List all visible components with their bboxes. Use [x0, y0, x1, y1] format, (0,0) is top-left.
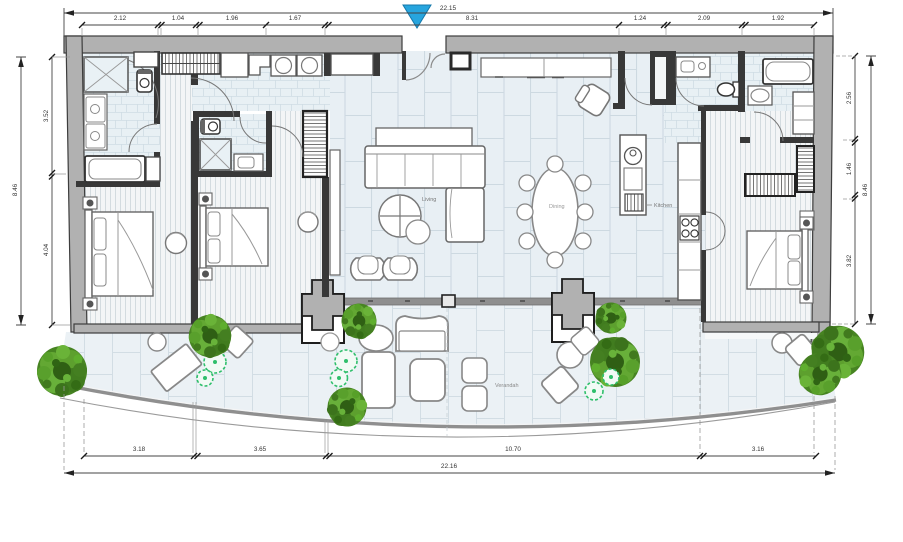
svg-text:8.46: 8.46	[12, 183, 19, 196]
svg-text:8.31: 8.31	[466, 15, 479, 22]
svg-text:2.56: 2.56	[846, 91, 853, 104]
svg-text:Kitchen: Kitchen	[654, 203, 672, 209]
svg-text:1.04: 1.04	[172, 15, 185, 22]
svg-text:3.16: 3.16	[752, 446, 765, 453]
svg-text:2.09: 2.09	[698, 15, 711, 22]
svg-text:22.16: 22.16	[441, 463, 458, 470]
svg-text:Verandah: Verandah	[495, 383, 519, 389]
svg-text:3.52: 3.52	[43, 109, 50, 122]
svg-text:3.82: 3.82	[846, 254, 853, 267]
svg-text:3.65: 3.65	[254, 446, 267, 453]
svg-text:Dining: Dining	[549, 204, 565, 210]
svg-text:8.46: 8.46	[862, 183, 869, 196]
svg-text:10.70: 10.70	[505, 446, 521, 453]
svg-text:1.46: 1.46	[846, 162, 853, 175]
svg-text:22.15: 22.15	[440, 5, 457, 12]
svg-text:4.04: 4.04	[43, 243, 50, 256]
svg-text:2.12: 2.12	[114, 15, 127, 22]
svg-text:1.67: 1.67	[289, 15, 302, 22]
svg-text:1.24: 1.24	[634, 15, 647, 22]
svg-text:Living: Living	[422, 197, 436, 203]
svg-text:1.92: 1.92	[772, 15, 785, 22]
svg-text:3.18: 3.18	[133, 446, 146, 453]
svg-text:1.96: 1.96	[226, 15, 239, 22]
